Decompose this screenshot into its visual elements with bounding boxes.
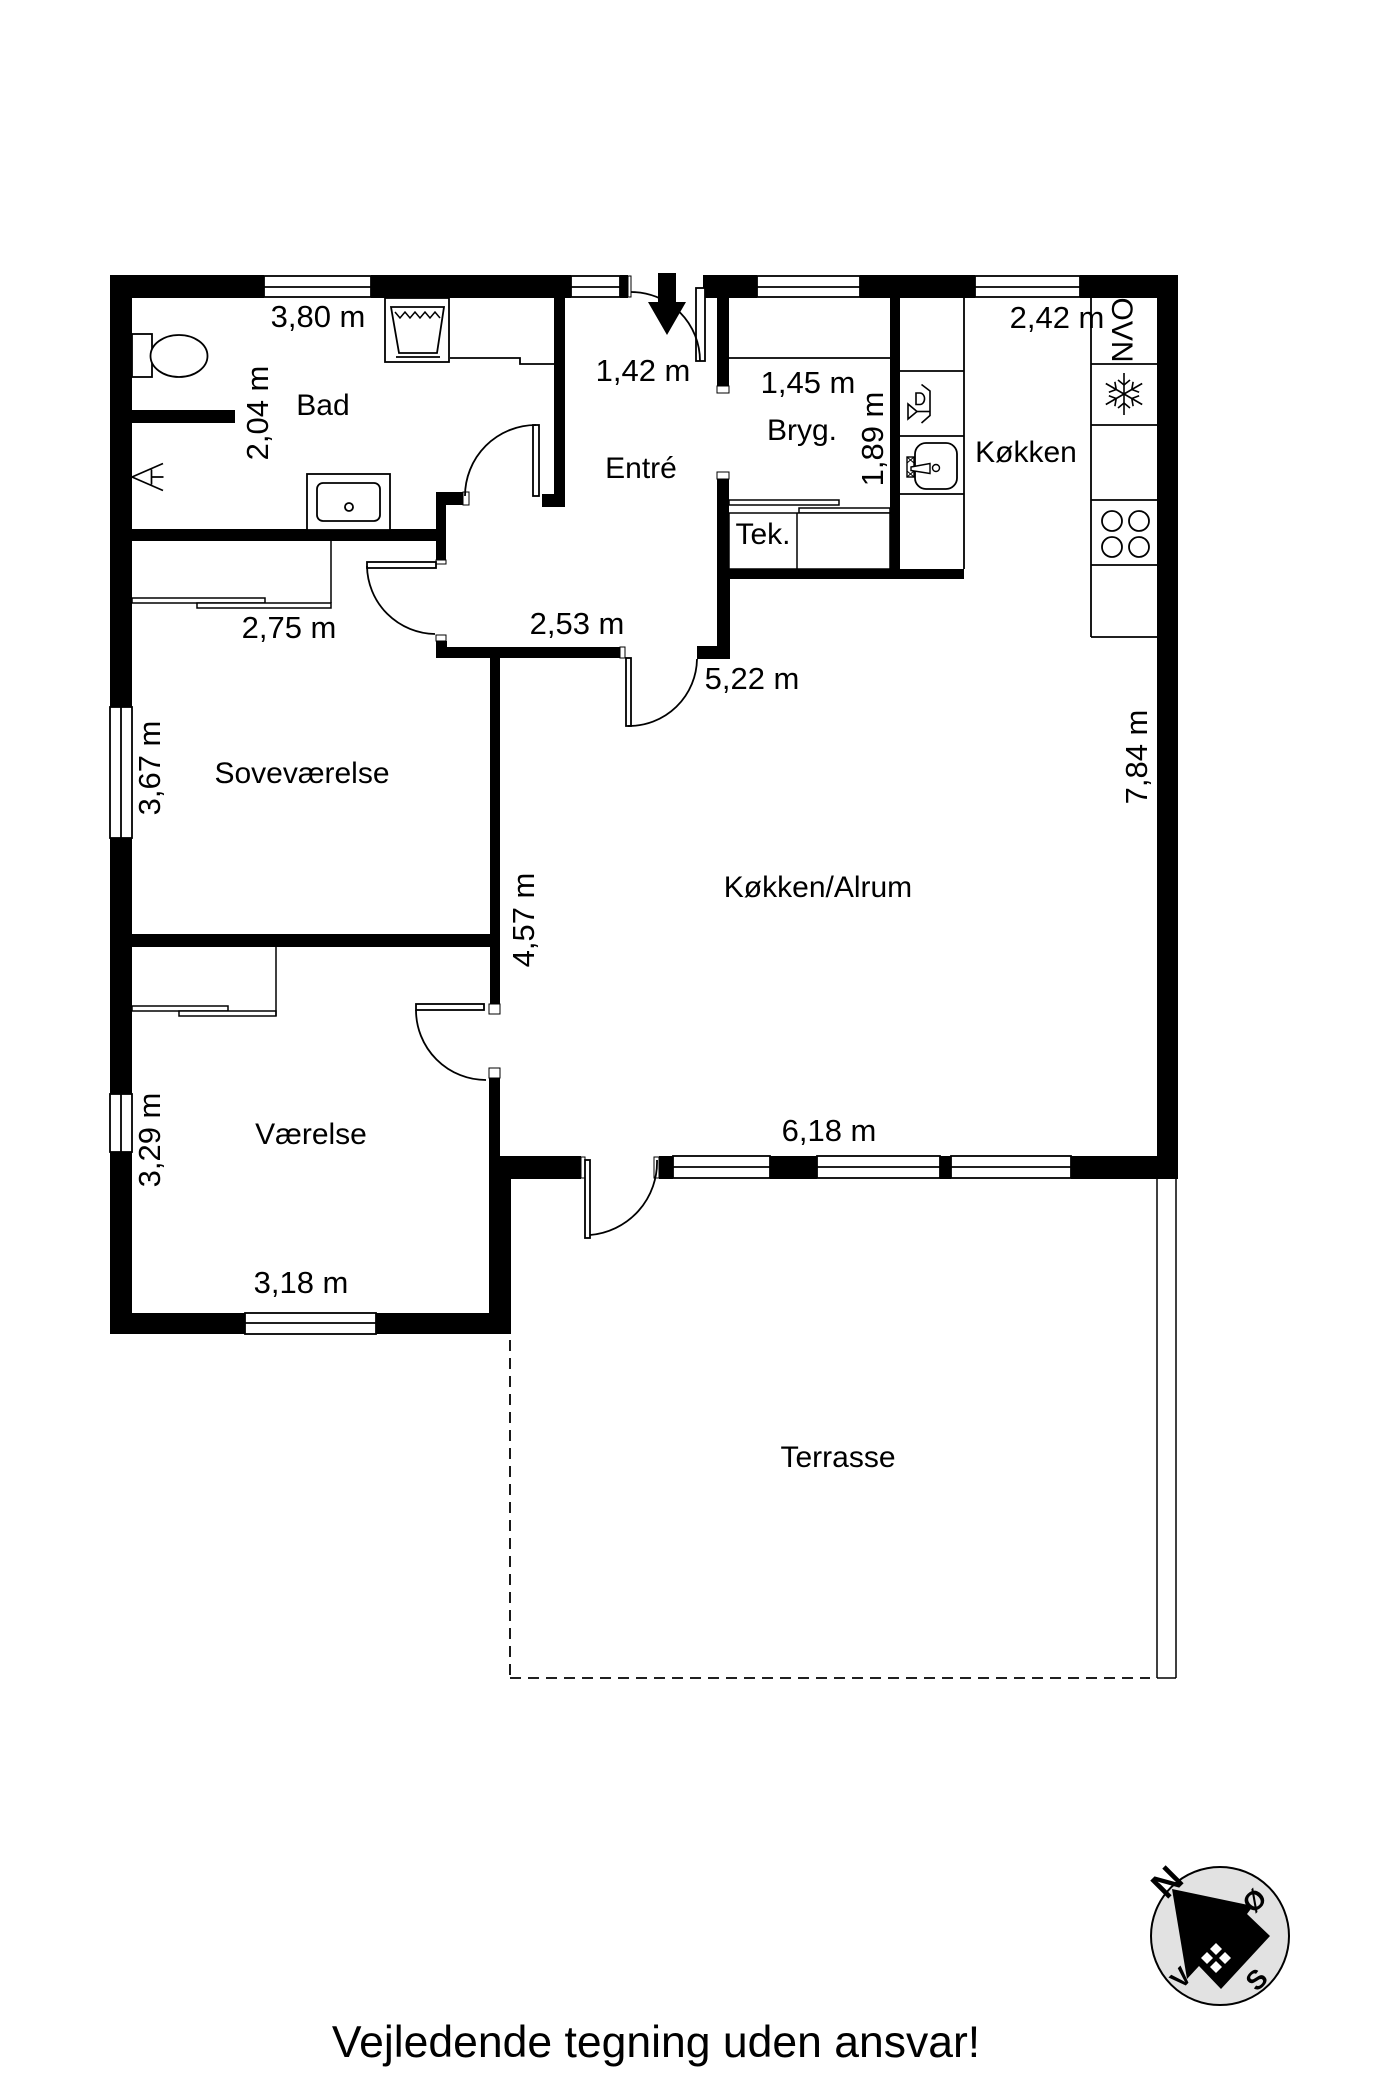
svg-text:2,04 m: 2,04 m: [240, 366, 275, 461]
svg-text:2,75 m: 2,75 m: [242, 610, 337, 645]
svg-text:Tek.: Tek.: [735, 518, 790, 551]
svg-text:1,45 m: 1,45 m: [761, 365, 856, 400]
svg-text:3,29 m: 3,29 m: [132, 1093, 167, 1188]
svg-text:Bad: Bad: [296, 389, 349, 422]
svg-text:2,53 m: 2,53 m: [530, 606, 625, 641]
svg-text:3,67 m: 3,67 m: [132, 721, 167, 816]
svg-text:2,42 m: 2,42 m: [1010, 300, 1105, 335]
svg-text:1,89 m: 1,89 m: [855, 392, 890, 487]
svg-text:5,22 m: 5,22 m: [705, 661, 800, 696]
svg-text:Køkken: Køkken: [975, 436, 1077, 469]
svg-text:OVN: OVN: [1105, 297, 1138, 362]
svg-text:3,18 m: 3,18 m: [254, 1265, 349, 1300]
svg-text:6,18 m: 6,18 m: [782, 1113, 877, 1148]
svg-text:Entré: Entré: [605, 452, 677, 485]
svg-text:Soveværelse: Soveværelse: [214, 757, 389, 790]
svg-text:Bryg.: Bryg.: [767, 414, 837, 447]
svg-text:Værelse: Værelse: [255, 1118, 367, 1151]
svg-text:1,42 m: 1,42 m: [596, 353, 691, 388]
svg-text:7,84 m: 7,84 m: [1119, 710, 1154, 805]
svg-text:Terrasse: Terrasse: [780, 1441, 895, 1474]
svg-text:Køkken/Alrum: Køkken/Alrum: [724, 871, 912, 904]
svg-text:3,80 m: 3,80 m: [271, 299, 366, 334]
svg-text:Vejledende tegning uden ansvar: Vejledende tegning uden ansvar!: [332, 2018, 980, 2067]
svg-text:4,57 m: 4,57 m: [506, 873, 541, 968]
